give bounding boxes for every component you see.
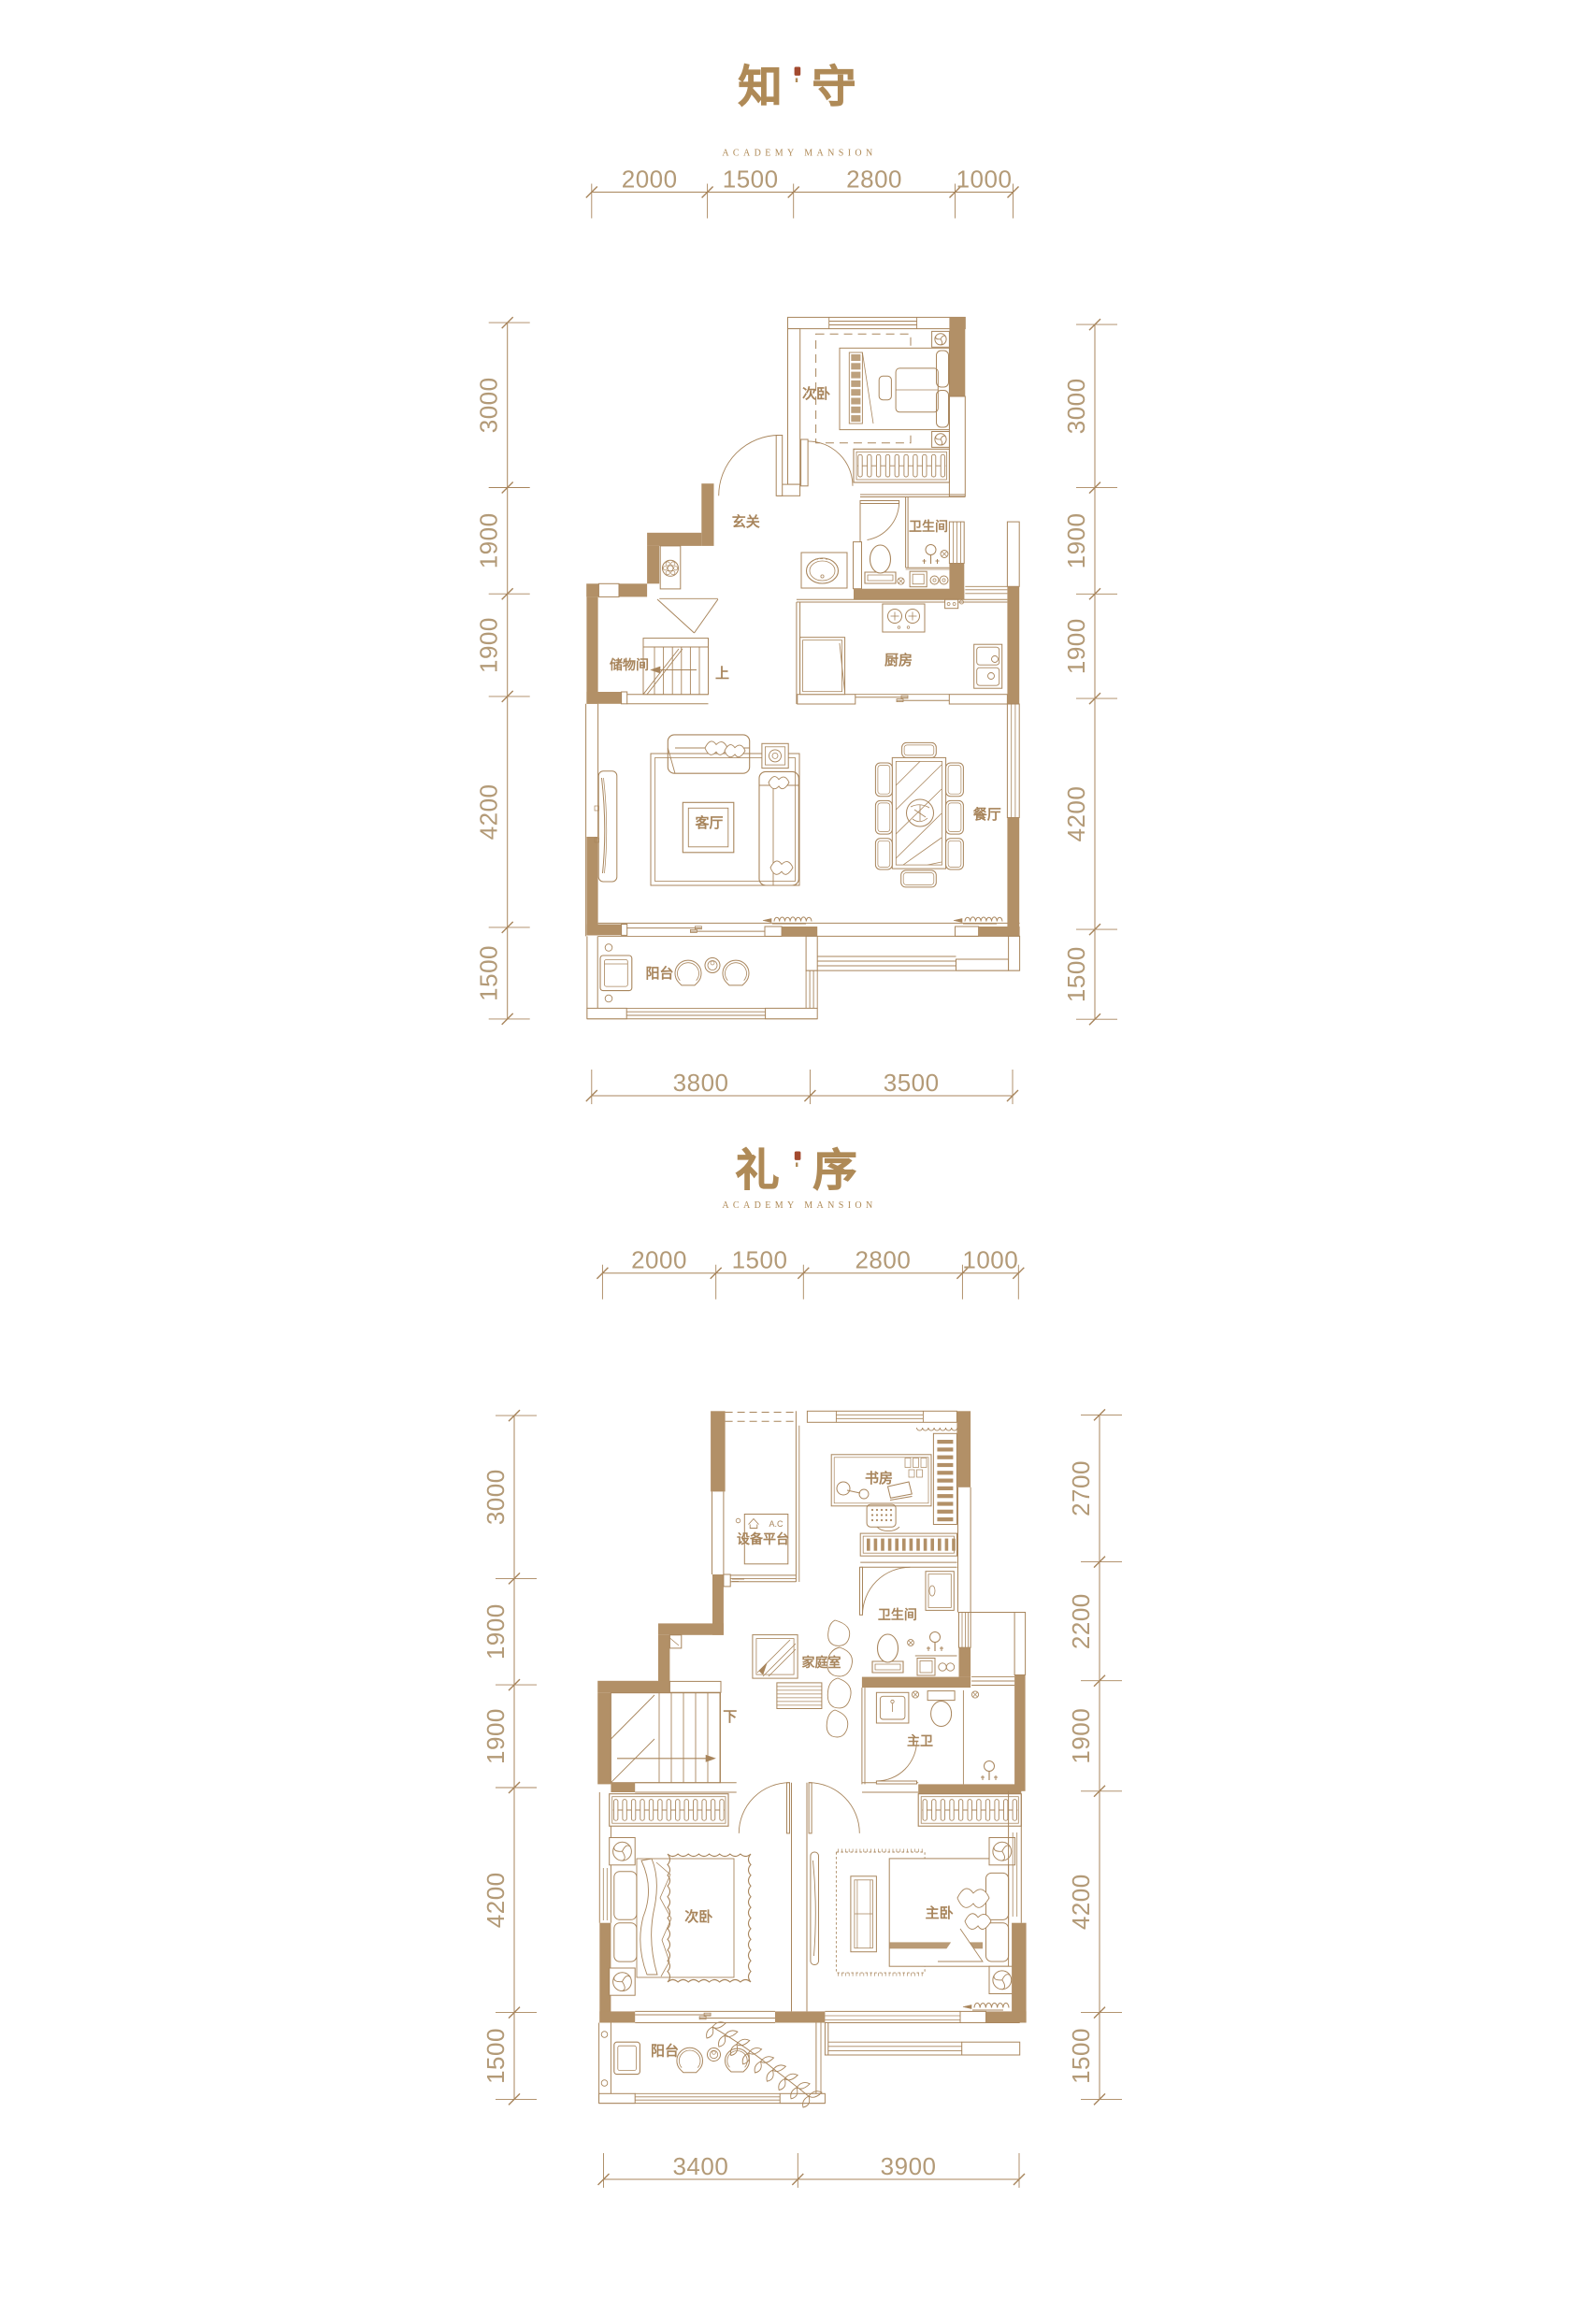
svg-text:3500: 3500 (884, 1069, 940, 1097)
svg-text:主卧: 主卧 (926, 1904, 954, 1921)
svg-text:1000: 1000 (956, 165, 1013, 194)
svg-text:序: 序 (813, 1147, 857, 1196)
svg-text:卫生间: 卫生间 (909, 519, 948, 534)
svg-text:阳台: 阳台 (651, 2043, 679, 2060)
svg-text:1500: 1500 (1067, 2028, 1095, 2084)
svg-text:设备平台: 设备平台 (737, 1531, 789, 1546)
svg-text:1500: 1500 (723, 165, 779, 194)
svg-text:1900: 1900 (1062, 618, 1090, 674)
svg-text:卫生间: 卫生间 (878, 1607, 917, 1622)
svg-text:2800: 2800 (855, 1246, 911, 1274)
svg-text:ACADEMY MANSION: ACADEMY MANSION (722, 1200, 876, 1211)
svg-text:3000: 3000 (1062, 378, 1090, 434)
svg-text:厨房: 厨房 (884, 652, 913, 668)
svg-text:4200: 4200 (482, 1872, 510, 1928)
svg-text:家庭室: 家庭室 (802, 1655, 841, 1670)
svg-text:礼: 礼 (736, 1147, 780, 1196)
svg-text:2000: 2000 (631, 1246, 687, 1274)
svg-text:客厅: 客厅 (694, 814, 723, 831)
svg-text:1500: 1500 (732, 1246, 788, 1274)
svg-text:1000: 1000 (962, 1246, 1018, 1274)
svg-text:下: 下 (723, 1709, 737, 1725)
svg-text:餐厅: 餐厅 (973, 806, 1001, 823)
svg-text:储物间: 储物间 (609, 657, 649, 672)
svg-text:A.C: A.C (769, 1519, 784, 1529)
svg-text:阳台: 阳台 (645, 965, 673, 982)
svg-text:2800: 2800 (846, 165, 902, 194)
svg-text:3000: 3000 (475, 377, 503, 433)
svg-text:书房: 书房 (865, 1470, 893, 1487)
svg-text:3800: 3800 (673, 1069, 729, 1097)
svg-text:2000: 2000 (622, 165, 678, 194)
svg-text:1500: 1500 (475, 945, 503, 1001)
svg-text:玄关: 玄关 (732, 513, 760, 530)
svg-text:上: 上 (715, 666, 729, 682)
svg-text:1900: 1900 (475, 512, 503, 568)
svg-text:知: 知 (739, 64, 783, 112)
svg-text:2200: 2200 (1067, 1593, 1095, 1649)
svg-text:ACADEMY MANSION: ACADEMY MANSION (722, 149, 876, 159)
svg-text:1500: 1500 (482, 2028, 510, 2084)
svg-text:守: 守 (812, 64, 856, 112)
svg-text:1900: 1900 (1067, 1708, 1095, 1764)
svg-text:1500: 1500 (1062, 946, 1090, 1002)
svg-text:1900: 1900 (482, 1708, 510, 1764)
svg-text:次卧: 次卧 (684, 1908, 712, 1925)
svg-text:4200: 4200 (1062, 786, 1090, 842)
svg-text:3400: 3400 (672, 2152, 728, 2180)
svg-text:次卧: 次卧 (802, 385, 830, 402)
svg-text:1900: 1900 (482, 1603, 510, 1660)
svg-text:3000: 3000 (482, 1469, 510, 1525)
svg-text:3900: 3900 (881, 2152, 937, 2180)
svg-text:1900: 1900 (475, 617, 503, 673)
svg-text:4200: 4200 (475, 783, 503, 840)
svg-text:1900: 1900 (1062, 513, 1090, 569)
svg-text:主卫: 主卫 (907, 1733, 933, 1748)
svg-text:2700: 2700 (1067, 1460, 1095, 1516)
svg-text:4200: 4200 (1067, 1874, 1095, 1930)
